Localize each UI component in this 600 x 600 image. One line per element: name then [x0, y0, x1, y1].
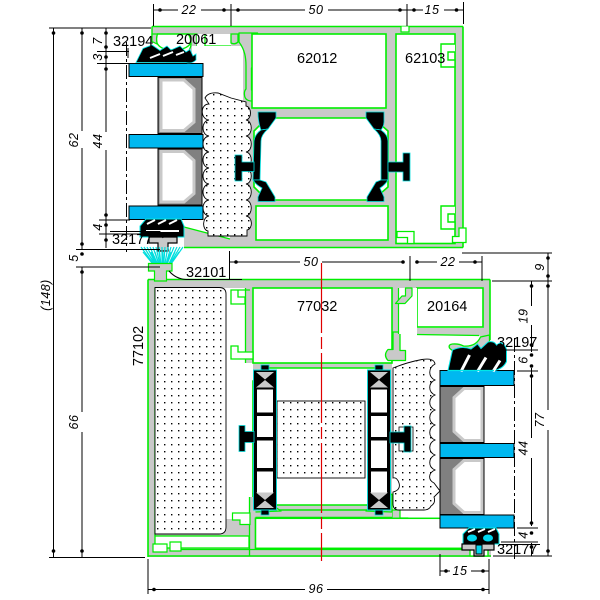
svg-text:32101: 32101	[186, 265, 226, 281]
svg-text:50: 50	[304, 255, 319, 269]
svg-text:4: 4	[517, 531, 531, 538]
svg-text:50: 50	[309, 3, 324, 17]
svg-text:5: 5	[67, 254, 81, 261]
svg-text:22: 22	[181, 3, 197, 17]
svg-text:62103: 62103	[405, 51, 445, 67]
svg-text:15: 15	[425, 3, 440, 17]
svg-text:20061: 20061	[176, 32, 216, 48]
svg-text:20164: 20164	[427, 299, 467, 315]
svg-text:32177: 32177	[112, 232, 152, 248]
svg-text:77102: 77102	[131, 326, 147, 366]
svg-text:62012: 62012	[297, 51, 337, 67]
svg-text:44: 44	[517, 441, 531, 456]
svg-text:6: 6	[517, 356, 531, 363]
svg-text:22: 22	[440, 255, 456, 269]
svg-text:66: 66	[67, 415, 81, 430]
svg-text:96: 96	[309, 582, 324, 596]
svg-text:9: 9	[533, 263, 547, 270]
svg-text:15: 15	[453, 564, 468, 578]
svg-text:32197: 32197	[497, 335, 537, 351]
svg-text:3: 3	[91, 53, 105, 60]
svg-text:4: 4	[91, 223, 105, 230]
svg-text:7: 7	[91, 37, 105, 45]
svg-text:(148): (148)	[39, 279, 53, 311]
svg-text:77: 77	[533, 412, 547, 427]
svg-text:19: 19	[517, 309, 531, 324]
svg-text:44: 44	[91, 134, 105, 149]
svg-text:77032: 77032	[297, 299, 337, 315]
svg-text:32194: 32194	[113, 34, 153, 50]
svg-text:62: 62	[67, 133, 81, 148]
